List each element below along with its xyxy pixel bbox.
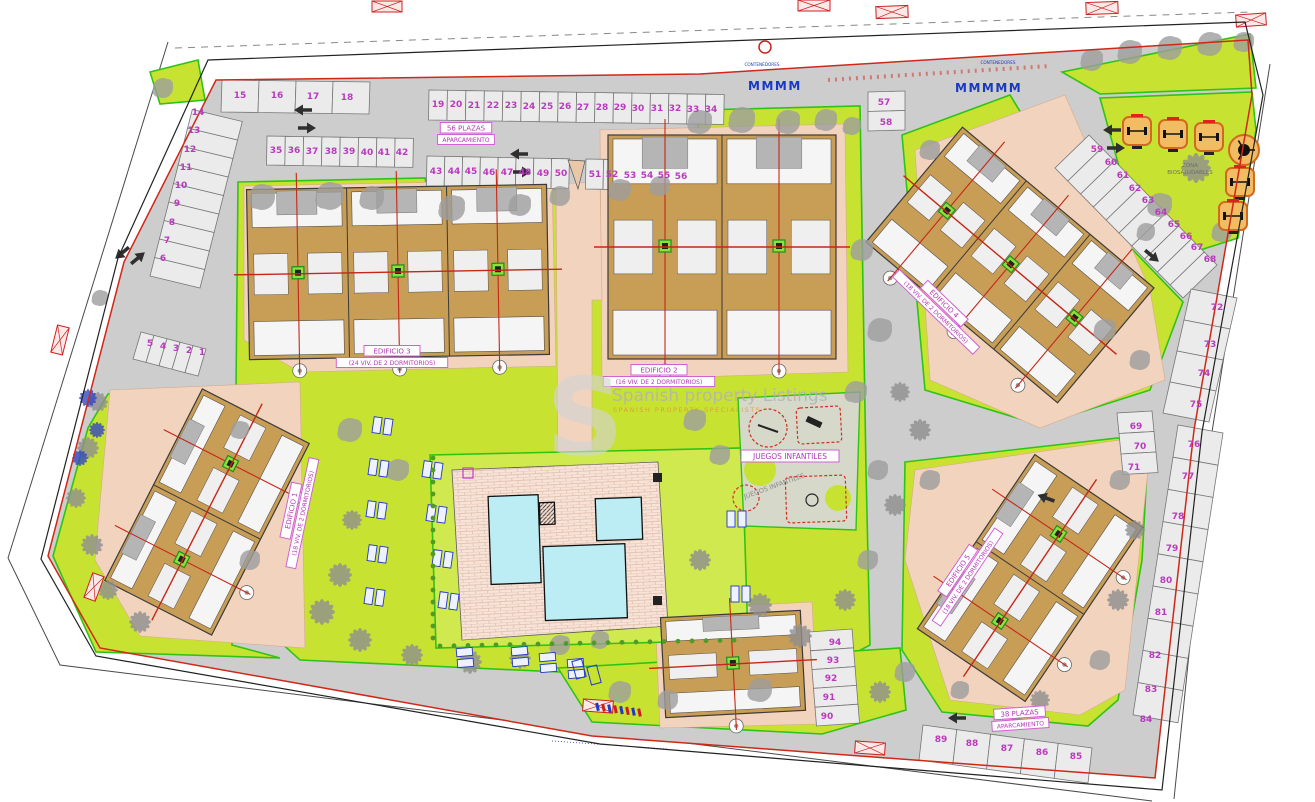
parking-space-number: 67 [1191, 243, 1204, 253]
hedge-dot [578, 641, 583, 646]
deck-fixture [653, 473, 662, 482]
parking-space-number: 63 [1142, 196, 1155, 206]
hedge-dot [466, 643, 471, 648]
hedge-dot [592, 641, 597, 646]
hedge-dot [431, 564, 436, 569]
hedge-dot [431, 636, 436, 641]
hedge-dot [550, 641, 555, 646]
parking-space-number: 15 [234, 91, 247, 101]
parking-stall [1054, 743, 1092, 783]
parking-space-number: 70 [1134, 442, 1147, 452]
parking-space-number: 60 [1105, 158, 1118, 168]
parking-space-number: 56 [675, 172, 688, 182]
parking-space-number: 47 [501, 168, 514, 178]
parking-space-number: 78 [1172, 512, 1185, 522]
parking-space-number: 41 [378, 148, 391, 158]
parking-space-number: 79 [1166, 544, 1179, 554]
parking-space-number: 40 [361, 148, 374, 158]
parking-space-number: 3 [173, 344, 179, 354]
parking-space-number: 87 [1001, 744, 1014, 754]
hedge-dot [508, 642, 513, 647]
parking-space-number: 90 [821, 712, 834, 722]
hedge-dot [620, 640, 625, 645]
parking-space-number: 38 [325, 147, 338, 157]
parking-space-number: 48 [519, 168, 532, 178]
parking-space-number: 26 [559, 102, 572, 112]
hedge-dot [431, 600, 436, 605]
parking-space-number: 21 [468, 101, 481, 111]
pool-kids [595, 497, 642, 541]
hedge-dot [431, 516, 436, 521]
parking-space-number: 34 [705, 105, 718, 115]
parking-space-number: 8 [169, 218, 175, 228]
hedge-dot [522, 642, 527, 647]
entrance-marker [1236, 13, 1267, 27]
parking-space-number: 66 [1180, 232, 1193, 242]
parking-space-number: 29 [614, 103, 627, 113]
parking-space-number: 91 [823, 693, 836, 703]
parking-space-number: 81 [1155, 608, 1168, 618]
svg-text:(24 VIV. DE 2 DORMITORIOS): (24 VIV. DE 2 DORMITORIOS) [349, 360, 436, 367]
parking-space-number: 61 [1117, 171, 1130, 181]
parking-space-number: 93 [827, 656, 840, 666]
parking-space-number: 4 [160, 342, 166, 352]
parking-space-number: 82 [1149, 651, 1162, 661]
parking-space-number: 52 [606, 170, 619, 180]
hedge-dot [431, 576, 436, 581]
label-parking-bottom: 38 PLAZASAPARCAMIENTO [991, 706, 1049, 732]
svg-text:EDIFICIO 2: EDIFICIO 2 [640, 367, 677, 375]
parking-space-number: 74 [1198, 369, 1211, 379]
parking-space-number: 33 [687, 105, 700, 115]
hedge-dot [564, 641, 569, 646]
parking-space-number: 9 [174, 199, 180, 209]
hedge-dot [732, 638, 737, 643]
hedge-dot [690, 639, 695, 644]
watermark-line1: Spanish property Listings [612, 386, 828, 406]
parking-space-number: 42 [396, 148, 409, 158]
parking-space-number: 2 [186, 346, 192, 356]
hedge-dot [431, 456, 436, 461]
parking-space-number: 58 [880, 118, 893, 128]
parking-space-number: 94 [829, 638, 842, 648]
parking-space-number: 14 [192, 108, 205, 118]
parking-space-number: 76 [1188, 440, 1201, 450]
parking-space-number: 86 [1036, 748, 1049, 758]
parking-space-number: 39 [343, 147, 356, 157]
entrance-marker [798, 0, 830, 11]
parking-space-number: 75 [1190, 400, 1203, 410]
pool-main-left [488, 495, 541, 585]
parking-space-number: 53 [624, 171, 637, 181]
hedge-dot [431, 480, 436, 485]
pool-steps [539, 502, 555, 525]
hedge-dot [536, 642, 541, 647]
parking-space-number: 71 [1128, 463, 1141, 473]
parking-space-number: 20 [450, 100, 463, 110]
parking-space-number: 32 [669, 104, 682, 114]
hedge-dot [431, 624, 436, 629]
parking-space-number: 84 [1140, 715, 1153, 725]
parking-space-number: 13 [188, 126, 201, 136]
parking-space-number: 83 [1145, 685, 1158, 695]
parking-space-number: 17 [307, 92, 320, 102]
parking-space-number: 80 [1160, 576, 1173, 586]
parking-space-number: 46 [483, 168, 496, 178]
parking-space-number: 25 [541, 102, 554, 112]
hedge-dot [676, 639, 681, 644]
waste-containers-icon: MMMMM [955, 81, 1022, 95]
hedge-dot [431, 552, 436, 557]
svg-text:(16 VIV. DE 2 DORMITORIOS): (16 VIV. DE 2 DORMITORIOS) [616, 379, 703, 386]
parking-space-number: 35 [270, 146, 283, 156]
containers-label: CONTENEDORES [744, 62, 779, 67]
parking-space-number: 23 [505, 101, 518, 111]
watermark-logo: S [546, 356, 624, 481]
parking-space-number: 62 [1129, 184, 1142, 194]
parking-space-number: 1 [199, 348, 205, 358]
hedge-dot [431, 528, 436, 533]
parking-space-number: 6 [160, 254, 166, 264]
deck-fixture [653, 596, 662, 605]
svg-text:APARCAMIENTO: APARCAMIENTO [442, 137, 489, 144]
containers-label: CONTENEDORES [980, 60, 1015, 65]
svg-text:ZONA: ZONA [1182, 163, 1198, 169]
parking-space-number: 37 [306, 147, 319, 157]
hedge-dot [718, 638, 723, 643]
parking-space-number: 49 [537, 169, 550, 179]
svg-text:JUEGOS INFANTILES: JUEGOS INFANTILES [752, 452, 827, 461]
fitness-station-icon [1195, 120, 1223, 155]
parking-space-number: 68 [1204, 255, 1217, 265]
parking-space-number: 30 [632, 104, 645, 114]
parking-space-number: 51 [589, 170, 602, 180]
hedge-dot [438, 644, 443, 649]
fitness-station-icon [1123, 114, 1151, 149]
hedge-dot [431, 588, 436, 593]
svg-text:56 PLAZAS: 56 PLAZAS [447, 125, 486, 133]
svg-text:EDIFICIO 3: EDIFICIO 3 [373, 348, 410, 356]
hedge-dot [431, 540, 436, 545]
parking-space-number: 7 [164, 236, 170, 246]
parking-space-number: 73 [1204, 340, 1217, 350]
parking-space-number: 36 [288, 146, 301, 156]
parking-space-number: 64 [1155, 208, 1168, 218]
parking-space-number: 59 [1091, 145, 1104, 155]
hedge-dot [662, 639, 667, 644]
entrance-marker [372, 1, 402, 12]
svg-text:BIOSALUDABLES: BIOSALUDABLES [1167, 170, 1213, 176]
parking-space-number: 69 [1130, 422, 1143, 432]
parking-space-number: 43 [430, 167, 443, 177]
parking-space-number: 88 [966, 739, 979, 749]
parking-stall [814, 685, 859, 707]
parking-space-number: 65 [1168, 220, 1181, 230]
entrance-marker [876, 5, 908, 18]
hedge-dot [606, 640, 611, 645]
hedge-dot [704, 638, 709, 643]
pool-main-right [543, 544, 628, 621]
parking-space-number: 50 [555, 169, 568, 179]
hedge-dot [634, 640, 639, 645]
parking-space-number: 18 [341, 93, 354, 103]
parking-space-number: 54 [641, 171, 654, 181]
entrance-marker [1086, 1, 1118, 14]
hedge-dot [648, 639, 653, 644]
hedge-dot [431, 468, 436, 473]
entrance-marker [855, 741, 886, 755]
parking-space-number: 57 [878, 98, 891, 108]
hedge-dot [431, 504, 436, 509]
parking-space-number: 45 [465, 167, 478, 177]
label-parking-top: 56 PLAZASAPARCAMIENTO [438, 123, 495, 145]
parking-space-number: 28 [596, 103, 609, 113]
parking-space-number: 10 [175, 181, 188, 191]
hedge-dot [494, 642, 499, 647]
parking-space-number: 16 [271, 91, 284, 101]
parking-space-number: 24 [523, 102, 536, 112]
parking-space-number: 72 [1211, 303, 1224, 313]
parking-space-number: 85 [1070, 752, 1083, 762]
parking-space-number: 22 [487, 101, 500, 111]
parking-space-number: 31 [651, 104, 664, 114]
parking-stall [1020, 739, 1058, 779]
waste-containers-icon: MMMM [748, 79, 802, 93]
parking-space-number: 77 [1182, 472, 1195, 482]
fitness-station-icon [1159, 117, 1187, 152]
parking-space-number: 92 [825, 674, 838, 684]
parking-space-number: 55 [658, 171, 671, 181]
parking-space-number: 11 [180, 163, 193, 173]
parking-space-number: 12 [184, 145, 197, 155]
parking-space-number: 27 [577, 103, 590, 113]
site-plan: MMMMCONTENEDORESMMMMMCONTENEDORES 123456… [0, 0, 1315, 802]
parking-space-number: 89 [935, 735, 948, 745]
hedge-dot [480, 643, 485, 648]
parking-space-number: 5 [147, 339, 153, 349]
parking-space-number: 44 [448, 167, 461, 177]
watermark-line2: SPANISH PROPERTY SPECIALISTS [613, 406, 761, 414]
building-edificio-2 [594, 119, 850, 378]
parking-space-number: 19 [432, 100, 445, 110]
hedge-dot [431, 612, 436, 617]
hedge-dot [431, 492, 436, 497]
hedge-dot [452, 643, 457, 648]
